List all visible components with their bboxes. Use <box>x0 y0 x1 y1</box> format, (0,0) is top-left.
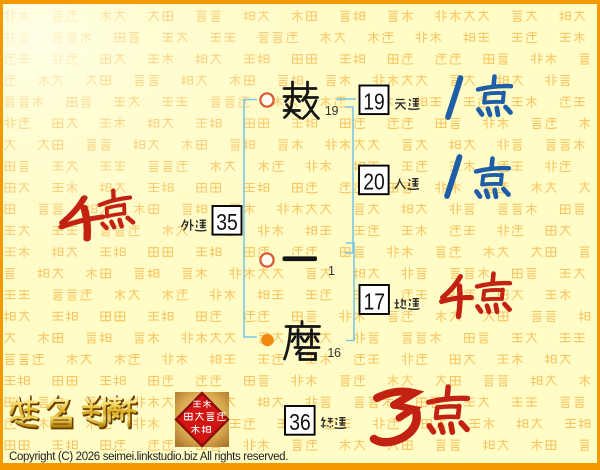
svg-text:35: 35 <box>216 211 237 236</box>
svg-text:20: 20 <box>363 170 384 195</box>
svg-text:19: 19 <box>325 104 339 118</box>
svg-text:19: 19 <box>363 90 384 115</box>
svg-text:36: 36 <box>289 411 310 436</box>
svg-text:1: 1 <box>328 264 335 278</box>
svg-text:17: 17 <box>363 290 384 315</box>
svg-text:16: 16 <box>327 346 341 360</box>
svg-text:Copyright (C) 2026 seimei.link: Copyright (C) 2026 seimei.linkstudio.biz… <box>9 451 288 463</box>
